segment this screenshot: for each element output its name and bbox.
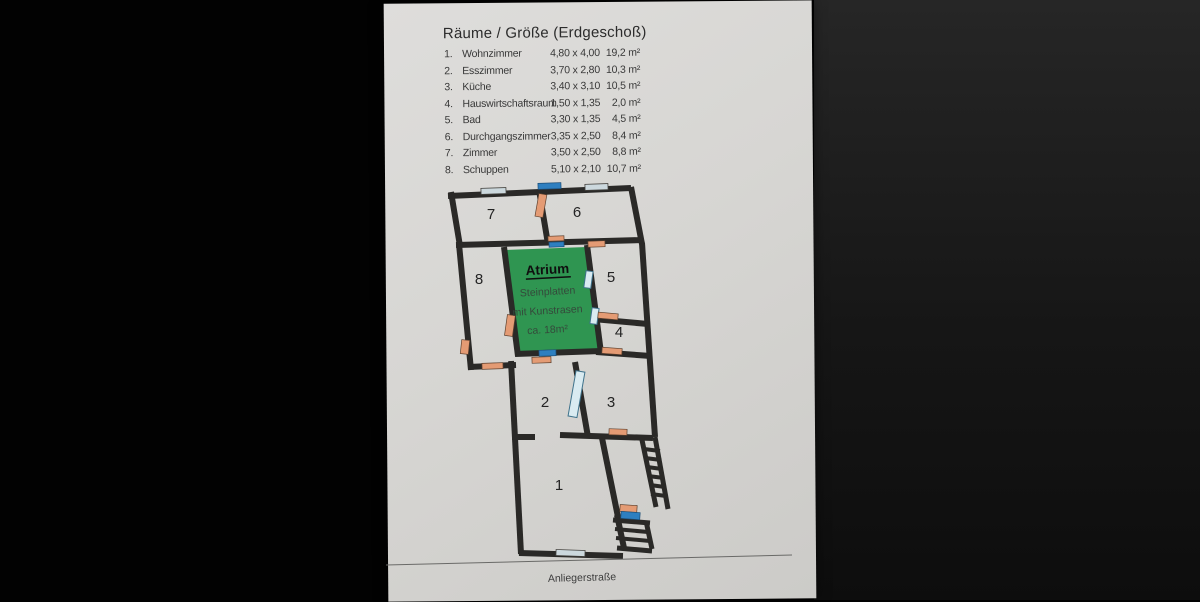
room-name: Esszimmer: [462, 65, 512, 77]
table-row: 1. Wohnzimmer 4,80 x 4,00 19,2 m²: [384, 46, 684, 61]
room-area: 4,5 m²: [589, 113, 641, 125]
room-area: 8,8 m²: [589, 146, 641, 158]
room-name: Küche: [462, 81, 491, 93]
room-area: 8,4 m²: [589, 130, 641, 142]
room-index: 3.: [444, 81, 452, 93]
table-row: 7. Zimmer 3,50 x 2,50 8,8 m²: [385, 145, 685, 160]
room-area: 10,5 m²: [588, 80, 640, 92]
room-size-table: 1. Wohnzimmer 4,80 x 4,00 19,2 m² 2. Ess…: [384, 0, 812, 3]
room-index: 1.: [444, 48, 452, 60]
table-row: 5. Bad 3,30 x 1,35 4,5 m²: [385, 112, 685, 127]
room-index: 7.: [445, 147, 453, 159]
page-title: Räume / Größe (Erdgeschoß): [443, 24, 647, 43]
room-index: 6.: [445, 131, 453, 143]
paper-sheet: Räume / Größe (Erdgeschoß) 1. Wohnzimmer…: [384, 0, 817, 601]
room-area: 10,3 m²: [588, 64, 640, 76]
room-area: 19,2 m²: [588, 47, 640, 59]
room-index: 5.: [445, 114, 453, 126]
room-name: Zimmer: [463, 147, 497, 159]
room-index: 2.: [444, 65, 452, 77]
photo-background-right: [814, 0, 1200, 600]
table-row: 2. Esszimmer 3,70 x 2,80 10,3 m²: [384, 63, 684, 78]
table-row: 3. Küche 3,40 x 3,10 10,5 m²: [384, 79, 684, 94]
room-name: Bad: [463, 114, 481, 126]
table-row: 8. Schuppen 5,10 x 2,10 10,7 m²: [385, 162, 685, 177]
room-area: 2,0 m²: [588, 97, 640, 109]
room-index: 8.: [445, 164, 453, 176]
room-index: 4.: [444, 98, 452, 110]
room-name: Hauswirtschaftsraum: [462, 97, 556, 110]
room-name: Schuppen: [463, 164, 509, 176]
table-row: 4. Hauswirtschaftsraum 1,50 x 1,35 2,0 m…: [384, 96, 684, 111]
room-area: 10,7 m²: [589, 163, 641, 175]
table-row: 6. Durchgangszimmer 3,35 x 2,50 8,4 m²: [385, 129, 685, 144]
room-name: Wohnzimmer: [462, 48, 522, 60]
room-name: Durchgangszimmer: [463, 130, 551, 143]
